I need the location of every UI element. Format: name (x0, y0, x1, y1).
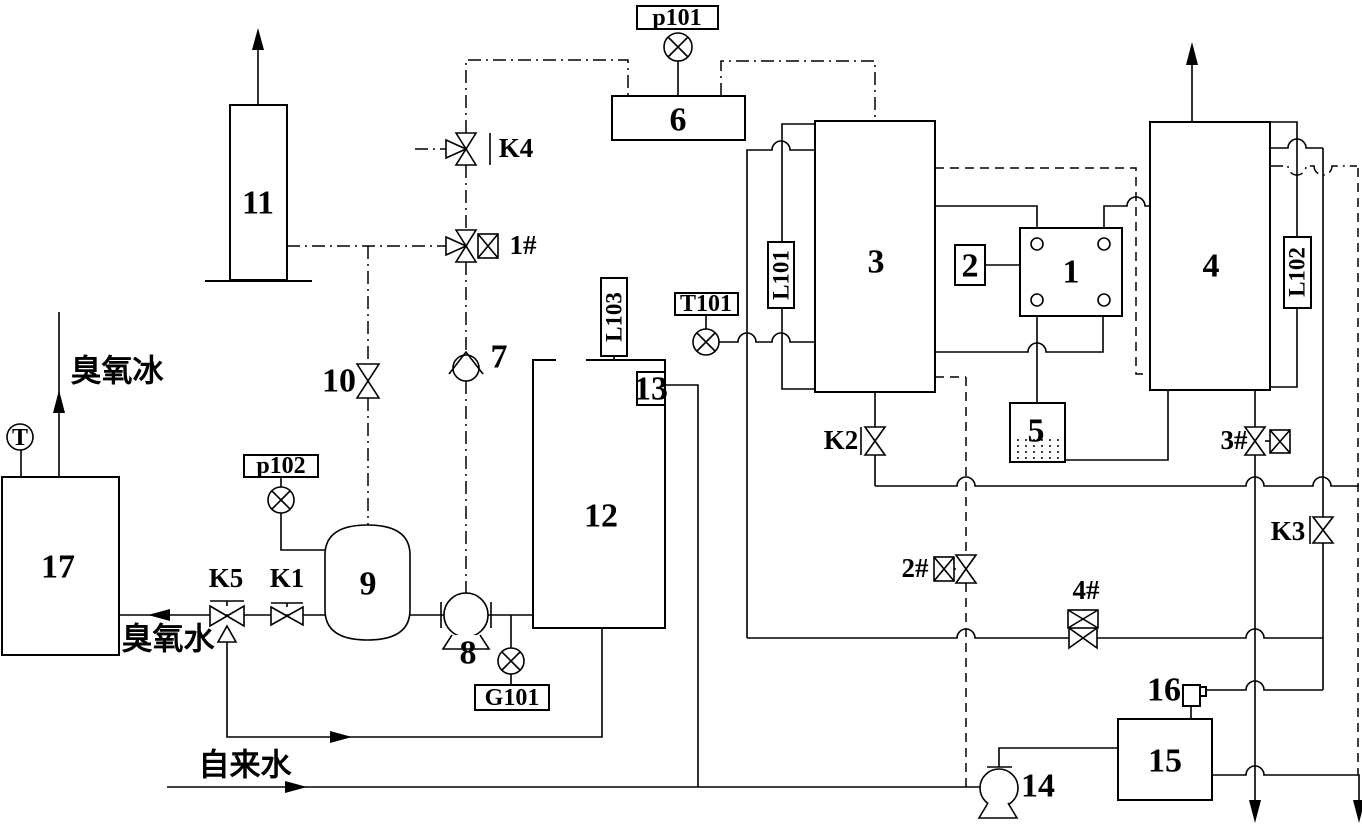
label-equipment-15: 15 (1148, 743, 1182, 780)
sensor-box-16 (1183, 685, 1200, 706)
pump-14 (979, 769, 1018, 818)
label-valve-1: 1# (510, 230, 538, 260)
arrow-down-outlet-2 (1353, 800, 1362, 823)
valve-2 (934, 555, 976, 583)
cell-port (1031, 294, 1043, 306)
arrow-down-outlet-1 (1249, 800, 1261, 823)
label-equipment-16: 16 (1147, 672, 1181, 709)
pid-diagram: 1 2 3 4 5 6 7 8 9 10 11 12 13 14 15 16 1… (0, 0, 1362, 826)
arrow-left-ozone-water (148, 609, 170, 621)
label-t: T (12, 425, 28, 451)
arrow-up-vent-4 (1186, 42, 1198, 65)
check-valve-7 (449, 352, 483, 381)
valve-k5 (210, 601, 244, 642)
label-t101: T101 (680, 291, 732, 317)
label-equipment-14: 14 (1021, 768, 1055, 805)
equipment-shapes (2, 96, 1270, 800)
label-l103: L103 (602, 292, 627, 342)
label-equipment-5: 5 (1028, 413, 1045, 450)
label-equipment-6: 6 (670, 102, 687, 139)
valve-10 (357, 364, 379, 398)
label-equipment-2: 2 (962, 248, 979, 285)
label-equipment-4: 4 (1203, 248, 1220, 285)
valve-4 (1068, 610, 1098, 648)
cell-port (1098, 238, 1110, 250)
label-p101: p101 (652, 5, 701, 31)
arrow-up-stack-11 (252, 28, 264, 50)
label-p102: p102 (256, 453, 305, 479)
valve-1 (446, 230, 498, 262)
label-valve-3: 3# (1221, 425, 1249, 455)
label-g101: G101 (485, 685, 540, 711)
label-equipment-1: 1 (1063, 254, 1080, 291)
label-equipment-8: 8 (460, 635, 477, 672)
label-k2: K2 (824, 425, 859, 455)
valve-k4 (446, 133, 490, 165)
label-equipment-10: 10 (322, 363, 356, 400)
arrow-up-ozone-ice (53, 390, 65, 413)
valve-3 (1245, 427, 1290, 455)
cell-port (1098, 294, 1110, 306)
label-equipment-12: 12 (584, 498, 618, 535)
valve-k3 (1310, 516, 1333, 544)
label-ozone-water: 臭氧水 (122, 622, 216, 657)
label-equipment-3: 3 (868, 244, 885, 281)
label-equipment-9: 9 (360, 566, 377, 603)
cell-port (1031, 238, 1043, 250)
label-equipment-11: 11 (242, 185, 274, 222)
label-equipment-13: 13 (634, 371, 668, 408)
label-valve-4: 4# (1073, 575, 1101, 605)
label-k5: K5 (209, 563, 244, 593)
label-ozone-ice: 臭氧冰 (71, 354, 165, 389)
label-l101: L101 (769, 250, 794, 300)
sensor-16-tab (1200, 687, 1206, 696)
label-k1: K1 (270, 563, 305, 593)
label-equipment-17: 17 (41, 549, 75, 586)
label-equipment-7: 7 (491, 339, 508, 376)
valve-k1 (271, 603, 303, 625)
label-valve-2: 2# (902, 553, 930, 583)
arrow-right-tap-water (285, 781, 307, 793)
arrow-right-loop (330, 731, 352, 743)
label-tap-water: 自来水 (199, 748, 293, 783)
label-k4: K4 (499, 133, 534, 163)
label-k3: K3 (1271, 516, 1306, 546)
valve-k2 (861, 427, 885, 455)
label-l102: L102 (1285, 247, 1310, 297)
